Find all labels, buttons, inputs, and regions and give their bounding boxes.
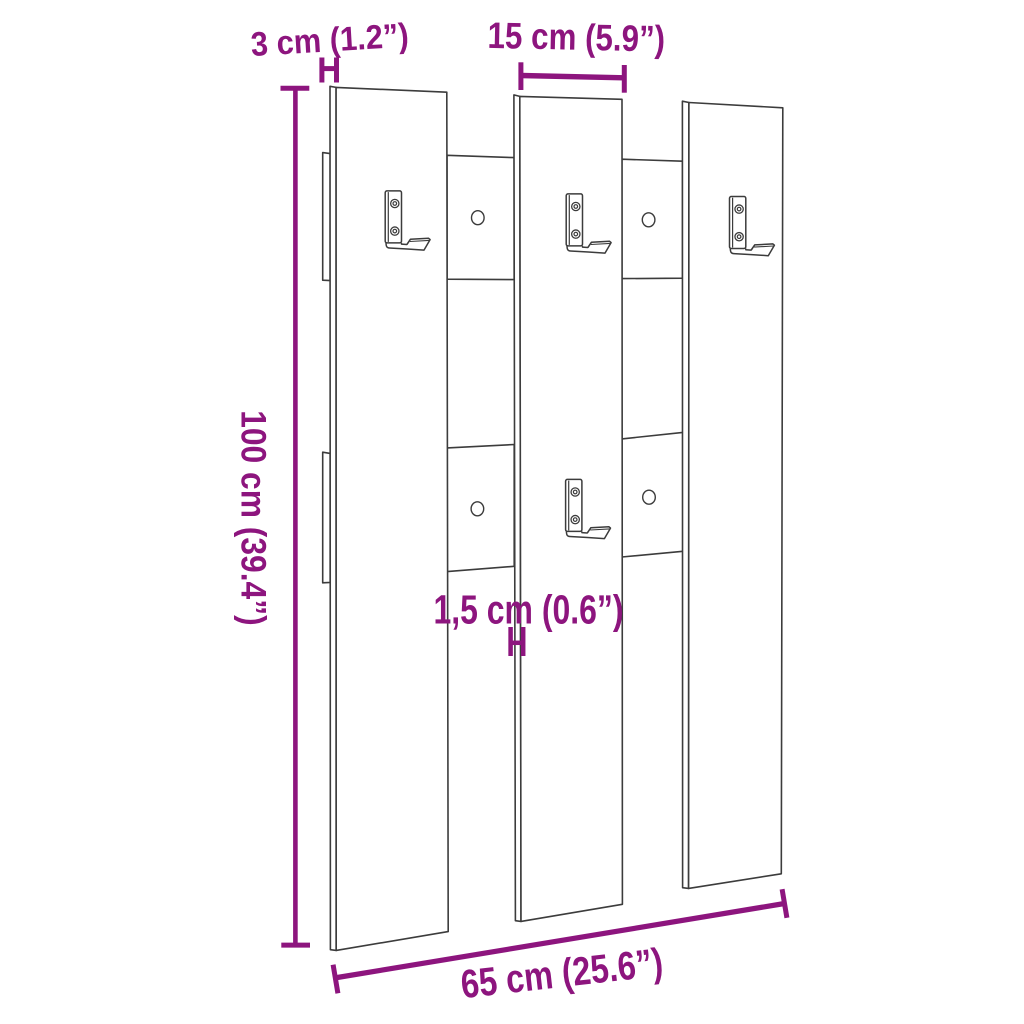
svg-text:100 cm (39.4”): 100 cm (39.4”)	[234, 410, 274, 626]
svg-text:1,5 cm (0.6”): 1,5 cm (0.6”)	[434, 587, 624, 633]
svg-text:15 cm (5.9”): 15 cm (5.9”)	[487, 15, 665, 60]
